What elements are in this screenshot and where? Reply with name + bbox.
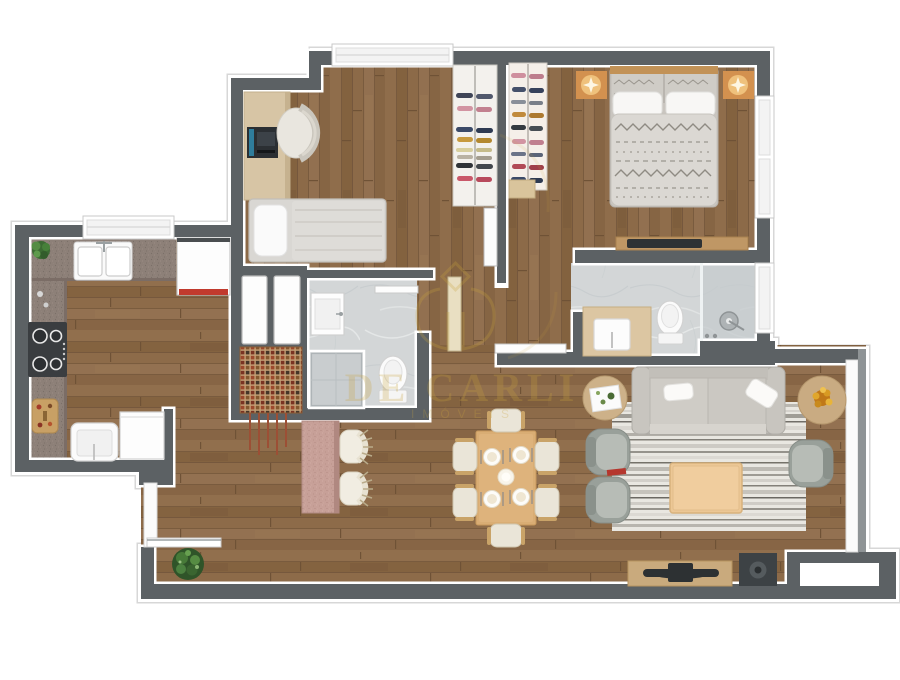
svg-text:IMÓVEIS: IMÓVEIS <box>411 406 517 421</box>
svg-text:DE CARLI: DE CARLI <box>345 365 579 410</box>
